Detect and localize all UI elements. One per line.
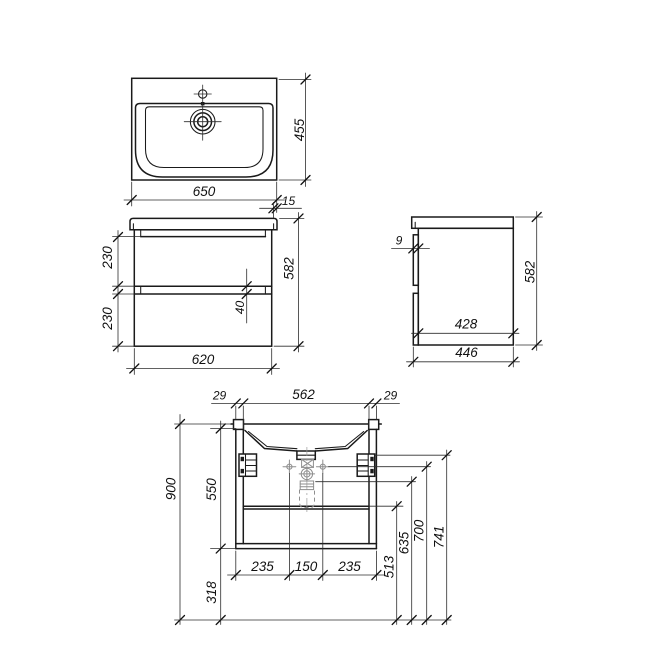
dim-sink-overhang-label: 15 <box>282 194 296 208</box>
supply-point-left <box>283 460 296 473</box>
dimension-gap: 40 <box>233 269 251 323</box>
drain-trap-assembly <box>299 447 314 514</box>
basin-section <box>245 431 367 460</box>
dim-drawer-top-label: 230 <box>100 246 115 270</box>
dim-wall-right-label: 29 <box>383 388 398 402</box>
dim-h-drain-label: 635 <box>396 531 411 554</box>
dim-gap-label: 40 <box>233 301 247 315</box>
rim-edge-right <box>369 420 379 430</box>
dimension-sink-depth: 455 <box>279 73 311 187</box>
dimension-side-height: 582 <box>516 212 543 351</box>
dimension-total-height: 900 <box>163 415 184 625</box>
dimension-depth: 446 <box>407 345 520 367</box>
dim-cabinet-span-label: 550 <box>204 478 219 501</box>
dim-panel-label: 9 <box>396 234 403 248</box>
dimension-h-shelf: 513 <box>381 502 401 625</box>
drawer-front-top-edge <box>413 235 418 285</box>
dimension-cabinet-span: 550 318 <box>204 421 236 625</box>
dimension-h-supply: 700 <box>411 462 431 625</box>
supply-point-right <box>316 460 329 473</box>
vanity-technical-drawing: 650 455 15 <box>0 0 650 650</box>
top-rail <box>141 230 266 237</box>
dim-h-bracket-label: 741 <box>431 526 446 549</box>
installation-view: 29 562 29 900 550 318 513 635 <box>163 387 451 625</box>
cabinet-carcass <box>236 429 377 548</box>
technical-drawing-page: 650 455 15 <box>0 0 650 650</box>
dimension-inner-depth: 428 <box>412 317 520 338</box>
dim-side-height-label: 582 <box>522 260 537 283</box>
dim-offset-left-label: 235 <box>250 559 274 574</box>
dim-sink-depth-label: 455 <box>292 118 307 141</box>
sink-top-view: 650 455 15 <box>124 73 311 218</box>
dimension-front-width: 620 <box>127 349 280 375</box>
dim-front-height-label: 582 <box>281 257 296 280</box>
dim-inner-depth-label: 428 <box>455 317 478 332</box>
dimension-h-bracket: 741 <box>431 450 451 625</box>
faucet-hole-symbol <box>194 85 211 105</box>
dim-h-supply-label: 700 <box>411 519 426 542</box>
dimension-sink-overhang: 15 <box>260 194 302 218</box>
dim-sink-width-label: 650 <box>193 184 216 199</box>
cabinet-front-view: 230 230 40 582 620 <box>100 213 304 375</box>
drain-symbol <box>184 103 221 140</box>
dim-total-height-label: 900 <box>163 477 178 500</box>
mounting-bracket-left <box>239 454 257 476</box>
mounting-bracket-right <box>357 454 375 476</box>
rim-edge-left <box>234 420 244 430</box>
dim-offset-right-label: 235 <box>337 559 361 574</box>
dimension-front-height: 582 <box>274 213 304 353</box>
dim-depth-label: 446 <box>455 345 478 360</box>
dim-floor-gap-label: 318 <box>204 581 219 604</box>
dim-drawer-bottom-label: 230 <box>100 307 115 331</box>
dimension-h-drain: 635 <box>396 477 416 625</box>
dim-opening-label: 562 <box>292 387 315 402</box>
dim-supply-span-label: 150 <box>295 559 318 574</box>
dim-wall-left-label: 29 <box>212 388 227 402</box>
dim-front-width-label: 620 <box>192 352 215 367</box>
cabinet-side-view: 9 428 446 582 <box>392 212 543 368</box>
dimension-panel-thickness: 9 <box>392 234 430 253</box>
